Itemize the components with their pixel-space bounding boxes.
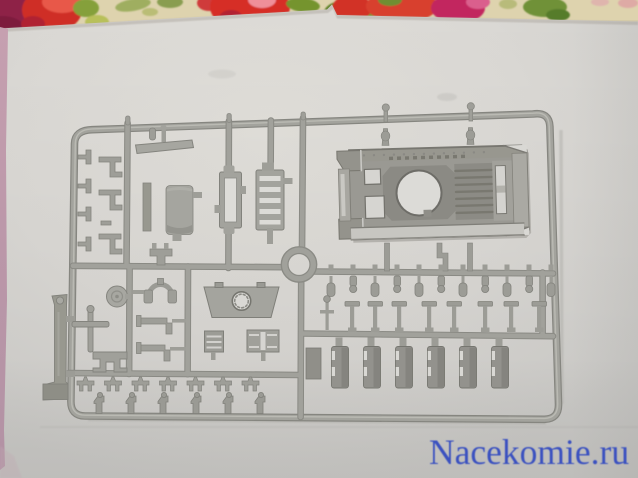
svg-text:Nacekomie.ru: Nacekomie.ru xyxy=(429,432,629,472)
